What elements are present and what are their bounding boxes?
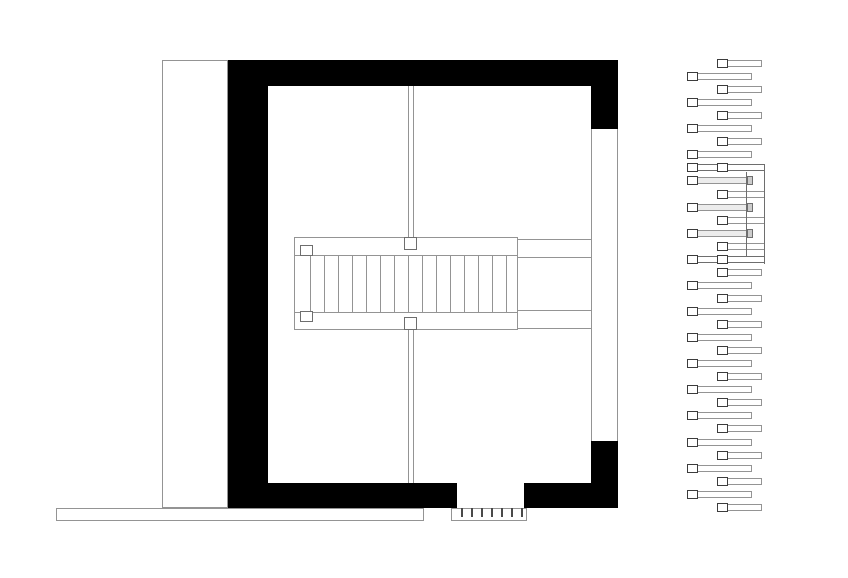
section-square — [717, 346, 728, 355]
partition-upper — [408, 86, 414, 238]
stoop-hatch-tick — [501, 508, 503, 517]
terrace-outline — [56, 508, 424, 521]
section-bar-endcap — [747, 176, 753, 185]
stair-tread-line — [380, 255, 381, 312]
stoop-hatch-tick — [471, 508, 473, 517]
section-square — [717, 255, 728, 264]
annex-outline — [162, 60, 228, 508]
stair-tread-line — [492, 255, 493, 312]
section-bar-endcap — [747, 203, 753, 212]
stair-tread-line — [310, 255, 311, 312]
section-square — [717, 477, 728, 486]
section-square — [717, 242, 728, 251]
section-square — [687, 438, 698, 447]
section-square — [687, 124, 698, 133]
section-bar-endcap — [747, 229, 753, 238]
section-square — [717, 372, 728, 381]
section-square — [687, 307, 698, 316]
section-square — [717, 85, 728, 94]
stair-landing-line — [518, 239, 591, 240]
section-square — [717, 398, 728, 407]
section-square — [687, 176, 698, 185]
stair-newel-bottom-left — [300, 311, 313, 322]
stair-tread-line — [436, 255, 437, 312]
partition-lower — [408, 330, 414, 483]
section-square — [687, 385, 698, 394]
stair-landing-line — [518, 257, 591, 258]
stair-post-bottom-center — [404, 317, 417, 330]
section-square — [687, 464, 698, 473]
section-square — [717, 163, 728, 172]
wall-bottom-right — [524, 483, 618, 508]
stair-inner-bottom-line — [294, 312, 518, 313]
section-square — [687, 281, 698, 290]
stair-landing-line — [518, 310, 591, 311]
section-square — [687, 255, 698, 264]
stair-tread-line — [366, 255, 367, 312]
wall-right-upper — [591, 60, 618, 129]
stair-tread-line — [450, 255, 451, 312]
section-square — [687, 150, 698, 159]
stair-inner-top-line — [294, 255, 518, 256]
stair-tread-line — [464, 255, 465, 312]
stoop-hatch-tick — [511, 508, 513, 517]
section-square — [717, 137, 728, 146]
section-square — [717, 503, 728, 512]
stoop-hatch-tick — [481, 508, 483, 517]
section-square — [687, 359, 698, 368]
section-square — [687, 98, 698, 107]
section-square — [687, 490, 698, 499]
section-square — [717, 294, 728, 303]
window-right-wall — [591, 129, 618, 441]
section-square — [717, 424, 728, 433]
wall-left — [228, 60, 268, 508]
section-square — [687, 163, 698, 172]
section-rail-line-inner — [746, 172, 747, 256]
section-square — [687, 333, 698, 342]
stair-tread-line — [422, 255, 423, 312]
section-square — [687, 72, 698, 81]
section-square — [717, 268, 728, 277]
section-square — [717, 190, 728, 199]
wall-bottom-left — [228, 483, 457, 508]
stoop-hatch-tick — [491, 508, 493, 517]
section-square — [717, 216, 728, 225]
stair-tread-line — [352, 255, 353, 312]
stoop-hatch-tick — [521, 508, 523, 517]
stair-tread-line — [478, 255, 479, 312]
section-square — [687, 411, 698, 420]
section-square — [717, 59, 728, 68]
floor-plan-canvas — [0, 0, 848, 578]
section-square — [717, 320, 728, 329]
section-square — [687, 229, 698, 238]
stair-landing-line — [518, 328, 591, 329]
wall-top — [228, 60, 618, 86]
stair-tread-line — [408, 255, 409, 312]
stoop-hatch-tick — [461, 508, 463, 517]
stair-post-top-center — [404, 237, 417, 250]
section-rail-line-outer — [764, 164, 765, 264]
stair-tread-line — [338, 255, 339, 312]
section-square — [687, 203, 698, 212]
stair-tread-line — [394, 255, 395, 312]
stair-tread-line — [324, 255, 325, 312]
section-square — [717, 111, 728, 120]
stair-newel-top-left — [300, 245, 313, 256]
stair-tread-line — [506, 255, 507, 312]
section-square — [717, 451, 728, 460]
